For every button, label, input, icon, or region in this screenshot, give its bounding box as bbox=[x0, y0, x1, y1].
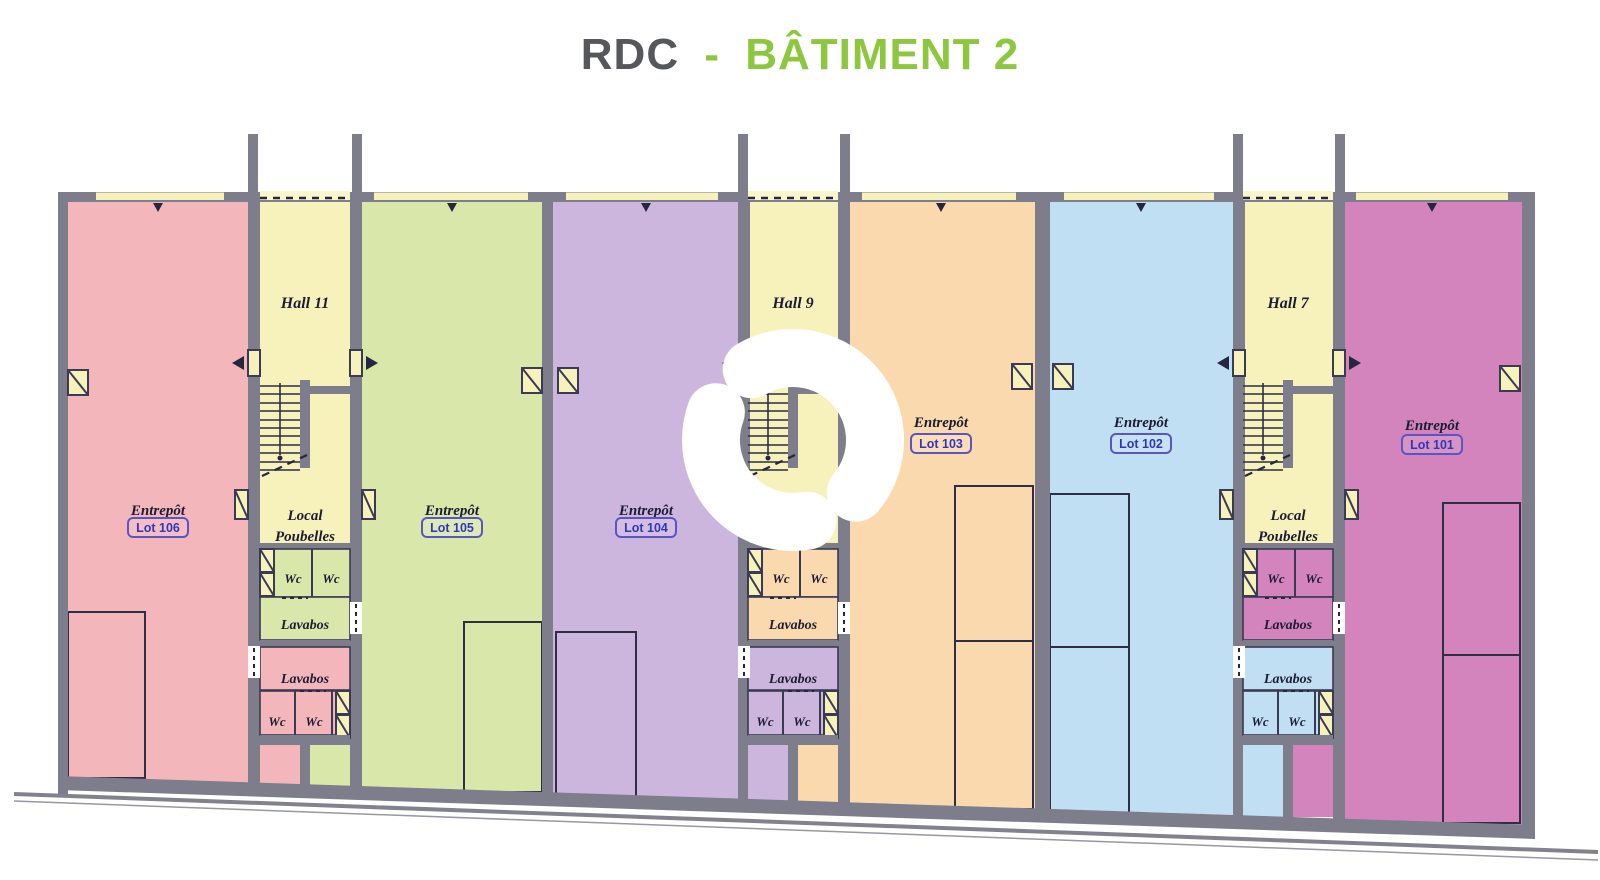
unit-area-lot-102 bbox=[1050, 202, 1233, 815]
unit-lot-106 bbox=[68, 202, 248, 784]
door-recess bbox=[350, 350, 362, 376]
lot-badge-label: Lot 104 bbox=[624, 521, 668, 535]
wall-fin bbox=[738, 134, 748, 192]
closet-shafts bbox=[748, 549, 762, 596]
hall-label: Hall 11 bbox=[280, 295, 329, 312]
divider-wall-105-104 bbox=[542, 202, 553, 802]
lavabos-label: Lavabos bbox=[768, 672, 818, 687]
unit-area-lot-105 bbox=[362, 202, 542, 794]
unit-lot-105 bbox=[362, 202, 542, 794]
local-poubelles-label: Poubelles bbox=[275, 529, 335, 545]
wc-label: Wc bbox=[810, 571, 828, 586]
unit-area-lot-106 bbox=[68, 202, 248, 784]
wc-label: Wc bbox=[1251, 714, 1269, 729]
closet-shafts bbox=[336, 691, 350, 738]
shaft-symbol bbox=[1053, 364, 1073, 389]
shaft-symbol bbox=[362, 490, 375, 519]
hall-floor bbox=[1243, 202, 1333, 549]
core-wall-right bbox=[1333, 202, 1345, 819]
lavabos-label: Lavabos bbox=[280, 618, 330, 633]
unit-type-label: Entrepôt bbox=[1113, 415, 1169, 431]
hall-label: Hall 7 bbox=[1266, 295, 1309, 312]
wc-label: Wc bbox=[793, 714, 811, 729]
wc-label: Wc bbox=[305, 714, 323, 729]
unit-lot-101 bbox=[1343, 202, 1522, 825]
door-recess bbox=[1333, 350, 1345, 376]
core-wall bbox=[1243, 735, 1333, 745]
window-strip bbox=[1064, 193, 1214, 201]
vestibule bbox=[1243, 745, 1283, 817]
core-wall bbox=[748, 640, 838, 647]
core-wall bbox=[748, 735, 838, 745]
vestibule bbox=[748, 745, 788, 802]
lavabos-label: Lavabos bbox=[1263, 618, 1313, 633]
core-wall bbox=[260, 640, 350, 647]
window-strip bbox=[374, 193, 528, 201]
closet-shafts bbox=[824, 691, 838, 738]
core-wall bbox=[1243, 640, 1333, 647]
lavabos-label: Lavabos bbox=[768, 618, 818, 633]
wc-label: Wc bbox=[284, 571, 302, 586]
shaft-symbol bbox=[1012, 364, 1032, 389]
shaft-symbol bbox=[522, 368, 542, 393]
lot-badge-label: Lot 105 bbox=[430, 521, 474, 535]
unit-lot-102 bbox=[1050, 202, 1233, 815]
unit-area-lot-101 bbox=[1343, 202, 1522, 825]
window-strip bbox=[1356, 193, 1508, 201]
window-strip bbox=[96, 193, 224, 201]
wc-label: Wc bbox=[1288, 714, 1306, 729]
local-poubelles-label: Poubelles bbox=[1258, 529, 1318, 545]
vestibule bbox=[310, 745, 350, 790]
lavabos-label: Lavabos bbox=[280, 672, 330, 687]
vestibule bbox=[1293, 745, 1333, 817]
shaft-symbol bbox=[235, 490, 248, 519]
unit-type-label: Entrepôt bbox=[130, 503, 186, 519]
right-wall bbox=[1522, 192, 1535, 832]
core-wall bbox=[260, 735, 350, 745]
shaft-symbol bbox=[558, 368, 578, 393]
shaft-symbol bbox=[68, 370, 88, 395]
door-recess bbox=[1233, 350, 1245, 376]
floor-plan-page: RDC - BÂTIMENT 2 bbox=[0, 0, 1600, 880]
stair-core-hall-7: Hall 7 Local Poubelles Wc Wc Lavabos Lav… bbox=[1217, 134, 1361, 819]
core-wall bbox=[788, 745, 798, 802]
left-wall bbox=[58, 192, 68, 795]
wc-label: Wc bbox=[322, 571, 340, 586]
wc-label: Wc bbox=[772, 571, 790, 586]
window-strip bbox=[566, 193, 718, 201]
wall-fin bbox=[248, 134, 258, 192]
unit-type-label: Entrepôt bbox=[1404, 418, 1460, 434]
wc-label: Wc bbox=[756, 714, 774, 729]
door-recess bbox=[248, 350, 260, 376]
lot-badge-label: Lot 103 bbox=[919, 437, 963, 451]
core-wall-left bbox=[248, 202, 260, 792]
core-wall-right bbox=[350, 202, 362, 792]
lot-badge-label: Lot 102 bbox=[1119, 437, 1163, 451]
unit-type-label: Entrepôt bbox=[618, 503, 674, 519]
shaft-symbol bbox=[1220, 490, 1233, 519]
lot-badge-label: Lot 106 bbox=[136, 521, 180, 535]
wall-fin bbox=[1233, 134, 1243, 192]
divider-wall-103-102 bbox=[1035, 202, 1050, 817]
core-wall bbox=[1283, 745, 1293, 817]
local-poubelles-label: Local bbox=[1270, 508, 1307, 524]
wc-label: Wc bbox=[1267, 571, 1285, 586]
wall-fin bbox=[840, 134, 850, 192]
wall-fin bbox=[1335, 134, 1345, 192]
local-poubelles-label: Local bbox=[287, 508, 324, 524]
wc-label: Wc bbox=[268, 714, 286, 729]
floor-plan: Hall 11 Local Poubelles Wc Wc Lavabos La… bbox=[0, 0, 1600, 880]
shaft-symbol bbox=[1500, 366, 1520, 391]
core-wall bbox=[300, 745, 310, 790]
closet-shafts bbox=[260, 549, 274, 596]
lot-badge-label: Lot 101 bbox=[1410, 438, 1454, 452]
lavabos-label: Lavabos bbox=[1263, 672, 1313, 687]
wall-fin bbox=[352, 134, 362, 192]
window-strip bbox=[862, 193, 1016, 201]
stair-core-hall-11: Hall 11 Local Poubelles Wc Wc Lavabos La… bbox=[232, 134, 378, 792]
vestibule bbox=[798, 745, 838, 802]
unit-type-label: Entrepôt bbox=[424, 503, 480, 519]
unit-type-label: Entrepôt bbox=[913, 415, 969, 431]
closet-shafts bbox=[1243, 549, 1257, 596]
hall-label: Hall 9 bbox=[771, 295, 813, 312]
shaft-symbol bbox=[1345, 490, 1358, 519]
wc-label: Wc bbox=[1305, 571, 1323, 586]
hall-floor bbox=[260, 202, 350, 549]
closet-shafts bbox=[1319, 691, 1333, 738]
